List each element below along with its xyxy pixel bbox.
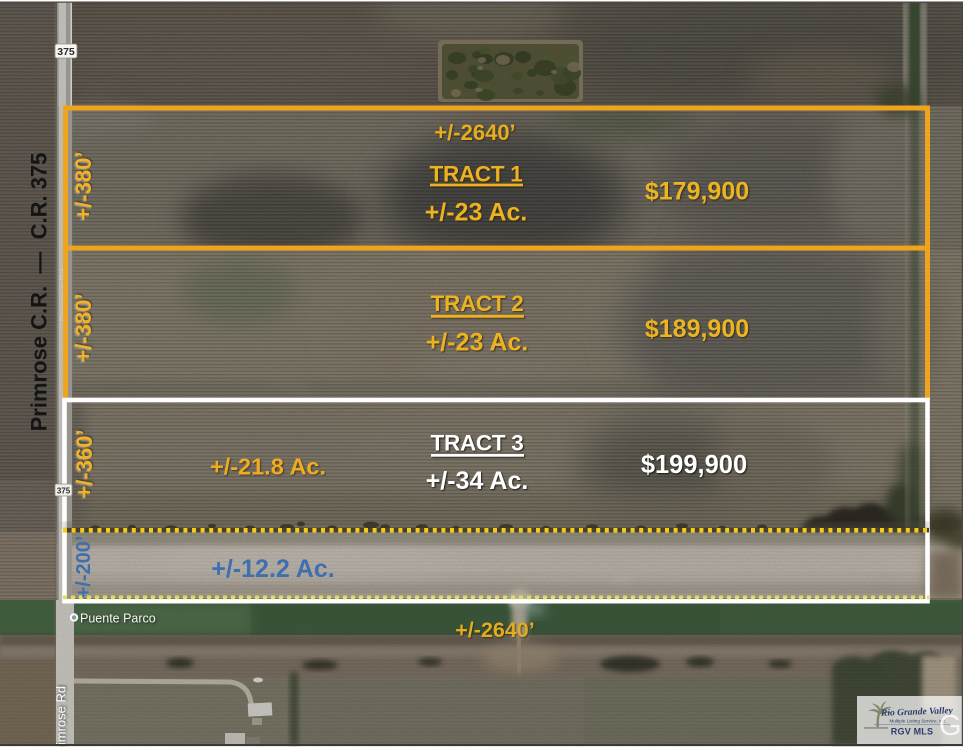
svg-text:$189,900: $189,900 xyxy=(645,315,749,343)
svg-text:+/-360’: +/-360’ xyxy=(72,429,97,498)
svg-text:+/-21.8 Ac.: +/-21.8 Ac. xyxy=(210,454,326,480)
svg-text:RGV MLS: RGV MLS xyxy=(891,727,933,737)
svg-text:Puente Parco: Puente Parco xyxy=(80,612,156,626)
svg-text:+/-23 Ac.: +/-23 Ac. xyxy=(425,198,528,226)
svg-text:+/-2640’: +/-2640’ xyxy=(455,618,535,642)
svg-text:TRACT 3: TRACT 3 xyxy=(431,431,524,456)
svg-text:$199,900: $199,900 xyxy=(641,451,747,479)
svg-text:+/-380’: +/-380’ xyxy=(71,151,96,220)
svg-text:+/-23 Ac.: +/-23 Ac. xyxy=(426,328,529,356)
svg-text:Multiple Listing Service, Inc.: Multiple Listing Service, Inc. xyxy=(890,719,947,724)
svg-text:Primrose C.R. — C.R. 375: Primrose C.R. — C.R. 375 xyxy=(27,153,52,432)
svg-text:+/-34 Ac.: +/-34 Ac. xyxy=(426,467,529,495)
svg-text:+/-2640’: +/-2640’ xyxy=(434,120,515,145)
svg-text:+/-12.2 Ac.: +/-12.2 Ac. xyxy=(211,555,334,583)
svg-text:TRACT 1: TRACT 1 xyxy=(430,162,523,187)
svg-text:375: 375 xyxy=(57,46,75,58)
svg-text:+/-200’: +/-200’ xyxy=(73,536,95,599)
svg-text:TRACT 2: TRACT 2 xyxy=(431,291,524,316)
svg-text:375: 375 xyxy=(57,487,71,496)
svg-text:$179,900: $179,900 xyxy=(645,178,749,206)
svg-text:Primrose Rd: Primrose Rd xyxy=(54,686,69,749)
svg-text:+/-380’: +/-380’ xyxy=(71,293,96,362)
